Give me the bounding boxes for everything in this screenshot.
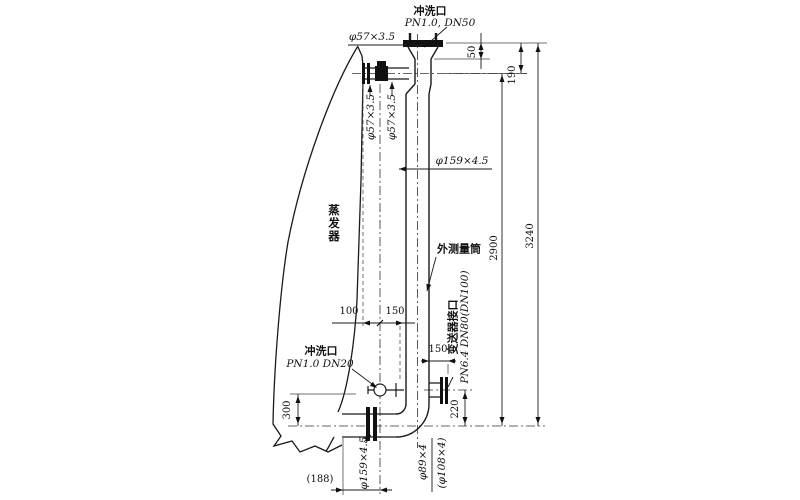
reducer [408, 47, 438, 59]
dim-100-text: 100 [339, 307, 358, 317]
top-valve [375, 66, 388, 81]
dim-150-top-text: 150 [385, 307, 404, 317]
dim-50-text: 50 [468, 46, 478, 59]
measuring-cylinder-body [396, 33, 443, 437]
top-connection-pipe [362, 61, 409, 84]
drawing-linework [0, 0, 800, 500]
elbow-inner [396, 404, 406, 414]
top-flange [403, 40, 443, 47]
neck-flare [406, 84, 431, 94]
dim-188-text: (188) [307, 475, 334, 485]
pipe57-top-label: φ57×3.5 [349, 32, 395, 43]
pipe57-left-label: φ57×3.5 [366, 94, 377, 140]
evaporator-label: 蒸发器 [328, 204, 341, 244]
dim-3240-text: 3240 [526, 223, 536, 248]
transmitter-port-label: 变送器接口 [448, 300, 459, 355]
bottom-flush-port-label: 冲洗口 [305, 346, 338, 357]
evaporator-outline [273, 46, 363, 452]
dim-220-text: 220 [451, 399, 461, 418]
dim-190-text: 190 [508, 65, 518, 84]
top-flush-port-spec: PN1.0, DN50 [405, 18, 476, 29]
elbow-outer [396, 404, 429, 437]
dim-2900-text: 2900 [490, 235, 500, 260]
flange-bolts [410, 33, 436, 40]
dim-150-stub-text: 150 [428, 345, 447, 355]
drain-spec-label: φ89×4 [418, 444, 429, 480]
transmitter-port-spec: PN6.4 DN80(DN100) [460, 270, 471, 383]
measuring-cylinder-label: 外测量筒 [437, 244, 481, 255]
top-flush-port-label: 冲洗口 [414, 6, 447, 17]
dim-300-text: 300 [283, 400, 293, 419]
arrowheads [296, 43, 541, 493]
drain-spec-alt-label: (φ108×4) [437, 437, 448, 488]
bottom-flush-port-spec: PN1.0 DN20 [286, 359, 353, 370]
transmitter-nozzle [429, 377, 448, 404]
pipe57-right-label: φ57×3.5 [387, 94, 398, 140]
bottom-pipe-spec-label: φ159×4.5 [359, 437, 370, 490]
center-lines [288, 34, 545, 494]
piping-diagram: 冲洗口 PN1.0, DN50 φ57×3.5 φ57×3.5 φ57×3.5 … [0, 0, 800, 500]
cylinder-spec-label: φ159×4.5 [436, 156, 489, 167]
